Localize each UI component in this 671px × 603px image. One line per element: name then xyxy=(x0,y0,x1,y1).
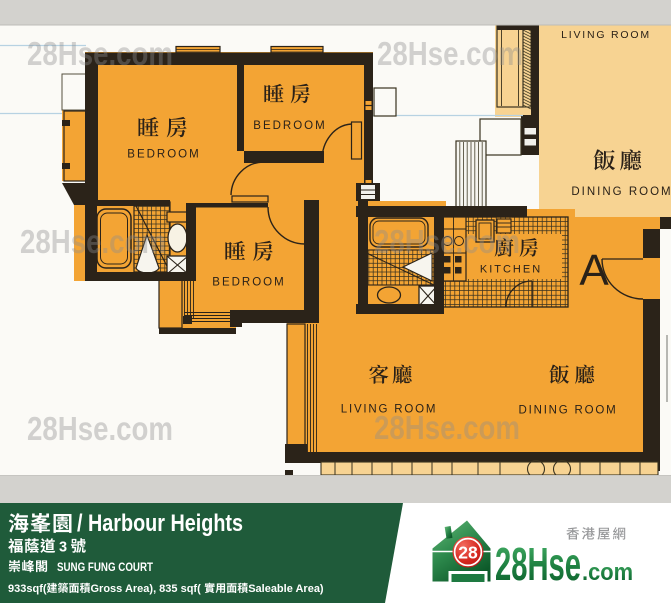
svg-text:28: 28 xyxy=(458,543,478,563)
svg-text:28Hse: 28Hse xyxy=(495,538,581,590)
svg-text:DINING ROOM: DINING ROOM xyxy=(518,405,617,417)
svg-text:28Hse.com: 28Hse.com xyxy=(374,409,520,446)
svg-text:BEDROOM: BEDROOM xyxy=(127,149,200,161)
svg-text:933sqf(: 933sqf( xyxy=(8,583,47,595)
svg-text:Gross Area), 835 sqf(: Gross Area), 835 sqf( xyxy=(91,583,202,595)
svg-text:28Hse.com: 28Hse.com xyxy=(27,410,173,447)
svg-text:KITCHEN: KITCHEN xyxy=(480,264,542,276)
svg-text:28Hse.com: 28Hse.com xyxy=(374,223,520,260)
svg-text:28Hse.com: 28Hse.com xyxy=(377,35,523,72)
svg-text:.com: .com xyxy=(582,559,633,586)
svg-text:BEDROOM: BEDROOM xyxy=(212,277,285,289)
svg-text:DINING ROOM: DINING ROOM xyxy=(571,186,671,198)
svg-text:SUNG FUNG COURT: SUNG FUNG COURT xyxy=(57,560,154,574)
svg-text:28Hse.com: 28Hse.com xyxy=(27,35,173,72)
svg-text:A: A xyxy=(579,246,609,295)
svg-text:LIVING ROOM: LIVING ROOM xyxy=(561,29,651,41)
svg-text:28Hse.com: 28Hse.com xyxy=(20,223,166,260)
svg-text:Saleable Area): Saleable Area) xyxy=(248,583,324,595)
svg-text:/ Harbour Heights: / Harbour Heights xyxy=(77,510,243,537)
svg-text:3: 3 xyxy=(59,540,67,556)
svg-text:BEDROOM: BEDROOM xyxy=(253,120,326,132)
